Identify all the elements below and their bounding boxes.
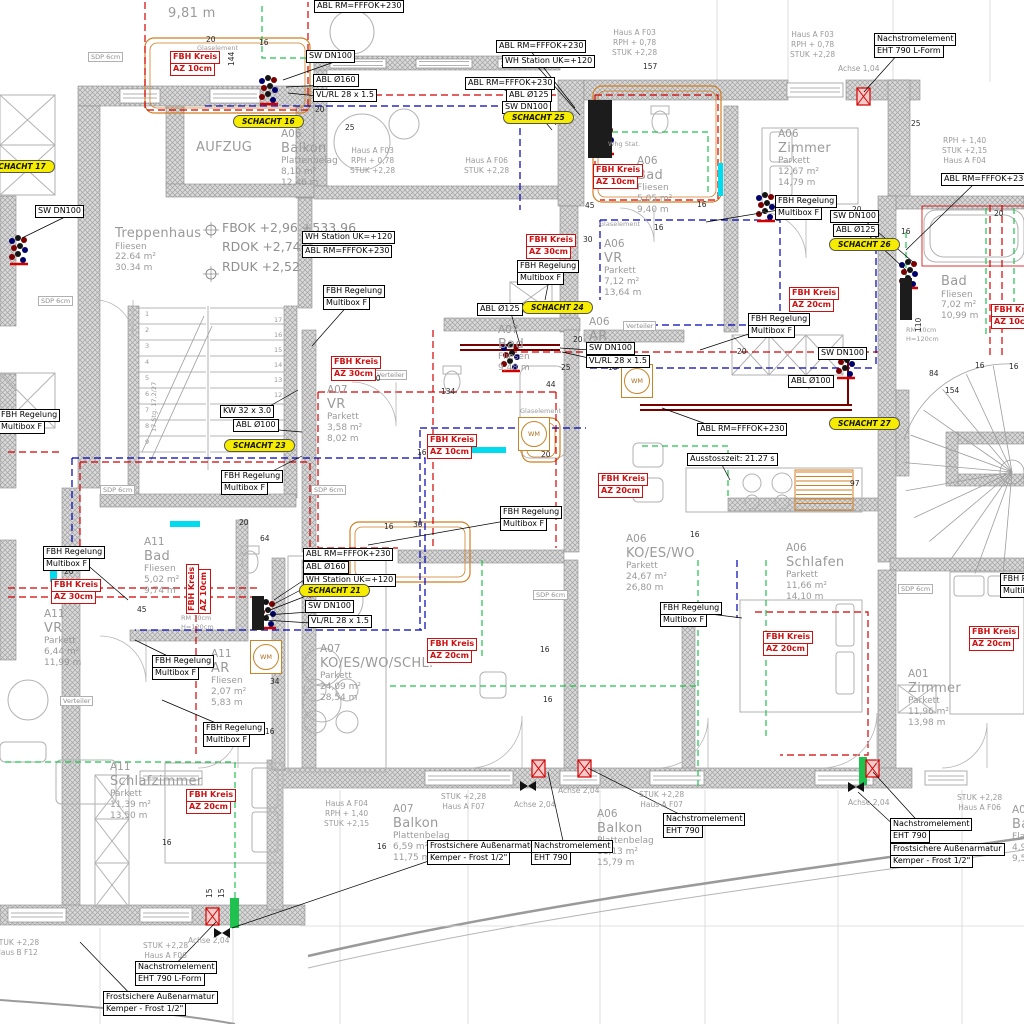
floor-plan: TreppenhausFliesen22.64 m²30.34 mAUFZUGA… — [0, 0, 1024, 1024]
floor-plan-drawing — [0, 0, 1024, 1024]
